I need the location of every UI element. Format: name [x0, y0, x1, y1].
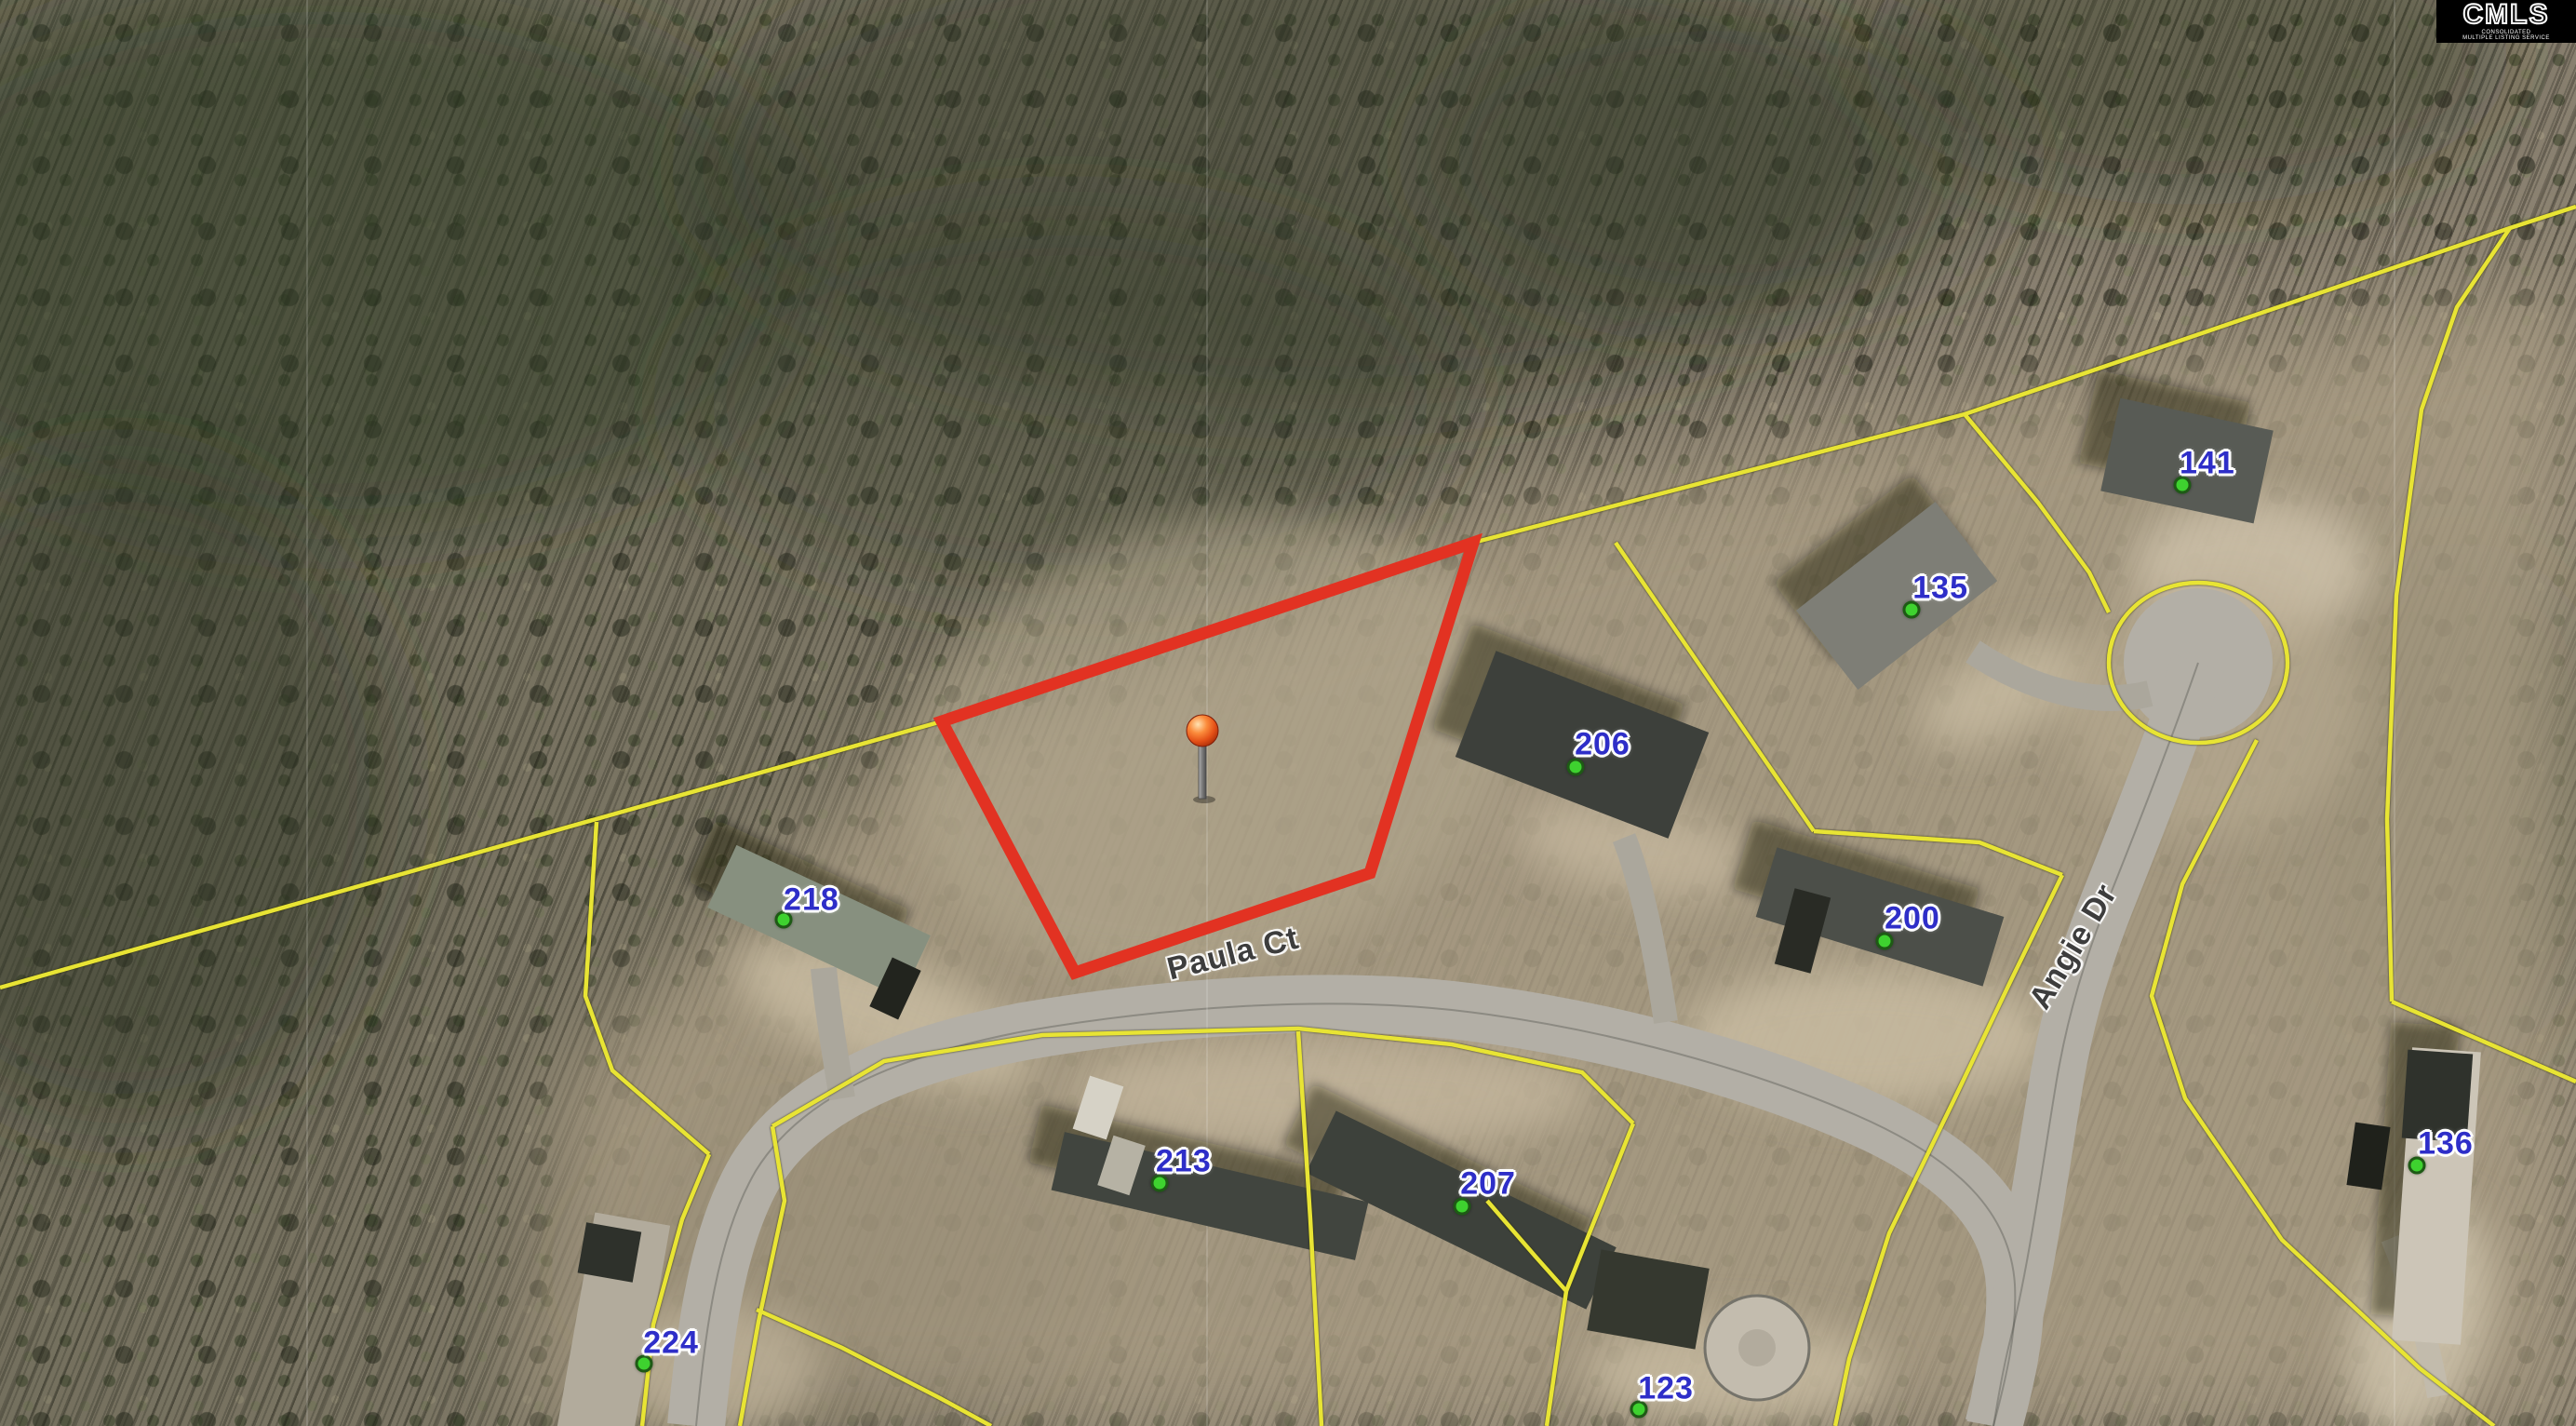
pin-ball — [1187, 715, 1218, 747]
pin-stick — [1199, 742, 1206, 799]
map-canvas[interactable]: 141 135 206 218 200 213 207 224 123 136 … — [0, 0, 2576, 1426]
parcel-label-213[interactable]: 213 — [1156, 1143, 1212, 1179]
cmls-logo: CMLS CONSOLIDATED MULTIPLE LISTING SERVI… — [2436, 0, 2576, 43]
map-artwork — [0, 0, 2576, 1426]
parcel-label-224[interactable]: 224 — [643, 1325, 699, 1361]
parcel-label-123[interactable]: 123 — [1638, 1371, 1694, 1407]
parcel-label-141[interactable]: 141 — [2180, 446, 2235, 482]
cmls-logo-text: CMLS — [2463, 2, 2550, 28]
house-224-roof — [578, 1222, 642, 1283]
parcel-label-135[interactable]: 135 — [1912, 570, 1968, 606]
parcel-label-218[interactable]: 218 — [784, 881, 839, 918]
parcel-label-200[interactable]: 200 — [1885, 901, 1940, 937]
parcel-label-206[interactable]: 206 — [1575, 727, 1630, 763]
cmls-logo-tagline: CONSOLIDATED MULTIPLE LISTING SERVICE — [2462, 30, 2550, 41]
parcel-label-207[interactable]: 207 — [1460, 1166, 1516, 1203]
parcel-label-136[interactable]: 136 — [2418, 1125, 2474, 1162]
